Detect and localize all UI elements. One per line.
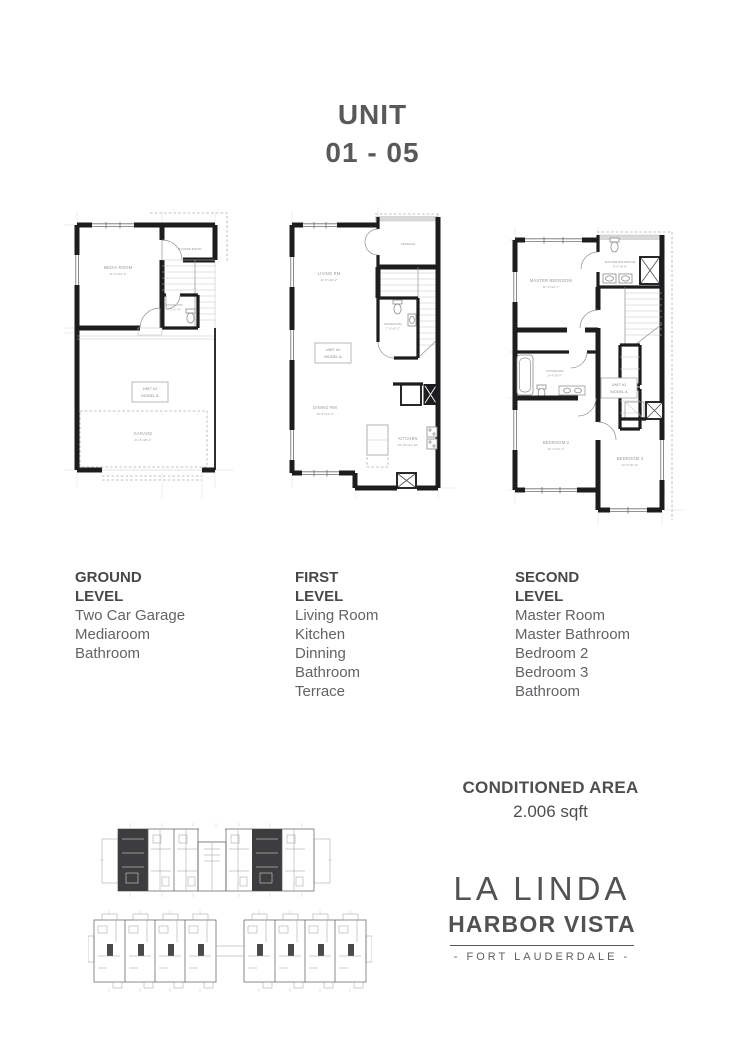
level-heading: LEVEL [75, 587, 275, 606]
unit-model-label: MODEL A [610, 389, 628, 394]
bathroom-dims: 7'-3"x5'-2" [386, 327, 400, 331]
level-item: Bedroom 3 [515, 663, 715, 682]
site-key-plan-lower [88, 908, 372, 994]
master-bathroom-dims: 9'-4"x5'-0" [613, 265, 627, 269]
kitchen-label: KITCHEN [398, 436, 417, 441]
level-item: Kitchen [295, 625, 495, 644]
first-level-floor-plan: TERRACE LIVING RM 11'-5"x19'-2" BATHROOM… [287, 203, 457, 498]
unit-model-label: UNIT #1 [143, 386, 157, 391]
media-room-label: MEDIA ROOM [104, 265, 133, 270]
garage-label: GARAGE [134, 431, 153, 436]
level-item: Terrace [295, 682, 495, 701]
brand-tagline: - FORT LAUDERDALE - [448, 951, 636, 963]
page-title: UNIT 01 - 05 [0, 96, 745, 172]
bathroom-label: BATHROOM [165, 303, 183, 307]
unit-model-label: MODEL A [141, 393, 159, 398]
logo-divider [450, 945, 634, 946]
ground-level-floor-plan: BATHROOM 5'-2"x7'-0" UNIT #1 MODEL A GAR… [62, 205, 237, 517]
media-room-dims: 11'-5"x14'-5" [109, 272, 126, 276]
level-item: Two Car Garage [75, 606, 275, 625]
bathroom-dims: 8'-4"x5'-0" [548, 374, 562, 378]
site-key-plan-upper [100, 823, 332, 897]
brand-subname: HARBOR VISTA [448, 911, 636, 938]
level-item: Bedroom 2 [515, 644, 715, 663]
level-item: Mediaroom [75, 625, 275, 644]
master-bedroom-dims: 11'-4"x12'-7" [542, 285, 559, 289]
unit-model-label: UNIT #1 [612, 382, 626, 387]
unit-model-label: MODEL A [324, 354, 342, 359]
dining-room-dims: 10'-5"x14'-4" [316, 412, 333, 416]
level-item: Master Bathroom [515, 625, 715, 644]
terrace-label: TERRACE [401, 242, 415, 246]
first-level-summary: FIRST LEVEL Living Room Kitchen Dinning … [295, 568, 495, 701]
bedroom-3-label: BEDROOM 3 [617, 456, 644, 461]
bathroom-label: BATHROOM [546, 369, 564, 373]
level-heading: SECOND [515, 568, 715, 587]
master-bedroom-label: MASTER BEDROOM [530, 278, 573, 283]
unit-title-line1: UNIT [0, 96, 745, 134]
living-room-dims: 11'-5"x19'-2" [320, 278, 337, 282]
level-item: Bathroom [75, 644, 275, 663]
ground-level-summary: GROUND LEVEL Two Car Garage Mediaroom Ba… [75, 568, 275, 663]
level-heading: LEVEL [515, 587, 715, 606]
level-heading: FIRST [295, 568, 495, 587]
brochure-page: UNIT 01 - 05 BATHROOM 5'-2"x7'-0" UNIT #… [0, 0, 745, 1054]
conditioned-area-value: 2.006 sqft [448, 802, 653, 822]
level-heading: GROUND [75, 568, 275, 587]
garage-dims: 21'-3"x20'-1" [134, 438, 151, 442]
bathroom-label: BATHROOM [384, 322, 402, 326]
level-item: Bathroom [515, 682, 715, 701]
second-level-summary: SECOND LEVEL Master Room Master Bathroom… [515, 568, 715, 701]
second-level-floor-plan: MASTER BEDROOM 11'-4"x12'-7" MASTER BATH… [507, 222, 688, 528]
level-heading: LEVEL [295, 587, 495, 606]
level-item: Master Room [515, 606, 715, 625]
bedroom-2-dims: 11'-4"x11'-2" [548, 447, 565, 451]
brand-name: LA LINDA [448, 870, 636, 908]
living-room-label: LIVING RM [318, 271, 341, 276]
conditioned-area: CONDITIONED AREA 2.006 sqft [448, 778, 653, 822]
unit-model-label: UNIT #1 [326, 347, 340, 352]
dining-room-label: DINING RM [313, 405, 337, 410]
brand-logo: LA LINDA HARBOR VISTA - FORT LAUDERDALE … [448, 870, 636, 963]
roofed-entry-label: ROOFED ENTRY [178, 247, 202, 251]
master-bathroom-label: MASTER BATHROOM [605, 260, 636, 264]
bathroom-dims: 5'-2"x7'-0" [167, 308, 181, 312]
unit-title-line2: 01 - 05 [0, 134, 745, 172]
kitchen-dims: 10'-10"x11'-10" [398, 443, 419, 447]
bedroom-3-dims: 12'-0"x8'-11" [621, 463, 638, 467]
conditioned-area-label: CONDITIONED AREA [448, 778, 653, 798]
bedroom-2-label: BEDROOM 2 [543, 440, 570, 445]
level-item: Bathroom [295, 663, 495, 682]
level-item: Living Room [295, 606, 495, 625]
level-item: Dinning [295, 644, 495, 663]
